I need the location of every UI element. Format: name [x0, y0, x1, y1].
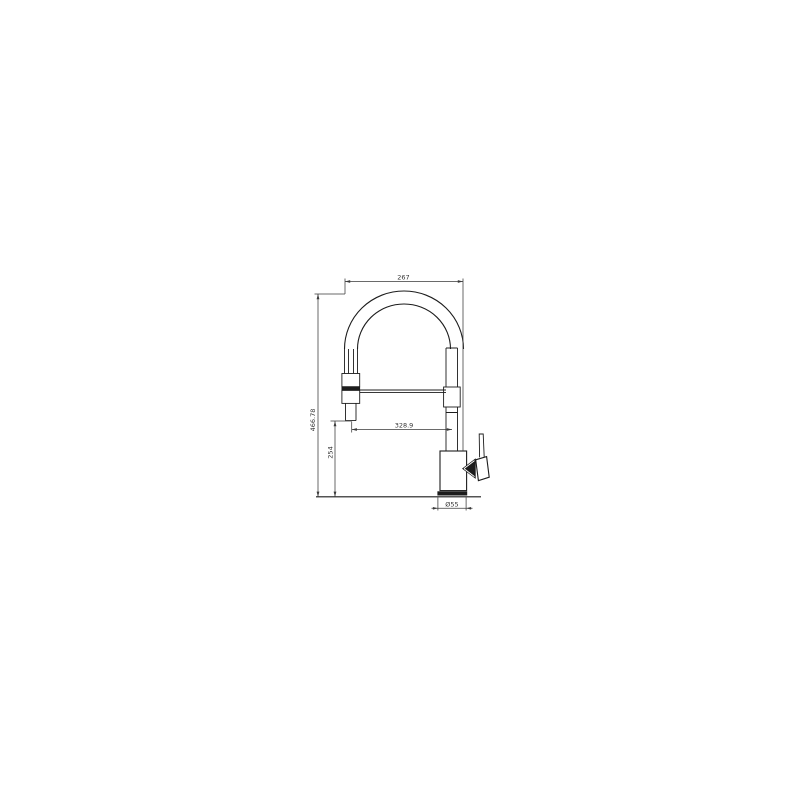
spray-head-nozzle: [346, 403, 357, 420]
dim-label-overall-height: 466.78: [309, 409, 317, 432]
spout-coupling: [444, 387, 461, 407]
spray-head-upper-block: [342, 374, 360, 387]
dim-spout-reach: 328.9: [352, 421, 452, 432]
spout-tube-upper: [446, 348, 458, 387]
dim-label-base-diameter: Ø55: [445, 500, 458, 508]
dimension-annotations: 267 466.78 254 328.9: [309, 274, 472, 511]
spray-head-lower-block: [342, 390, 360, 403]
faucet-technical-drawing: 267 466.78 254 328.9: [0, 0, 800, 800]
faucet-body: [440, 451, 467, 491]
dim-label-outlet-height: 254: [326, 446, 334, 458]
spout-support-bar: [360, 390, 446, 393]
handle-lever: [479, 434, 484, 457]
dim-outlet-height: 254: [326, 421, 351, 497]
spray-hose-leg: [345, 349, 358, 374]
dim-label-spout-reach: 328.9: [395, 421, 414, 429]
dim-base-diameter: Ø55: [432, 498, 473, 511]
spray-head-band: [342, 387, 361, 391]
dim-overall-height: 466.78: [309, 294, 345, 497]
base-flange: [437, 491, 467, 495]
spring-hose-arch: [345, 291, 464, 349]
dim-label-overall-width: 267: [397, 274, 409, 282]
drawing-canvas: 267 466.78 254 328.9: [0, 0, 800, 800]
handle-body: [476, 457, 490, 481]
